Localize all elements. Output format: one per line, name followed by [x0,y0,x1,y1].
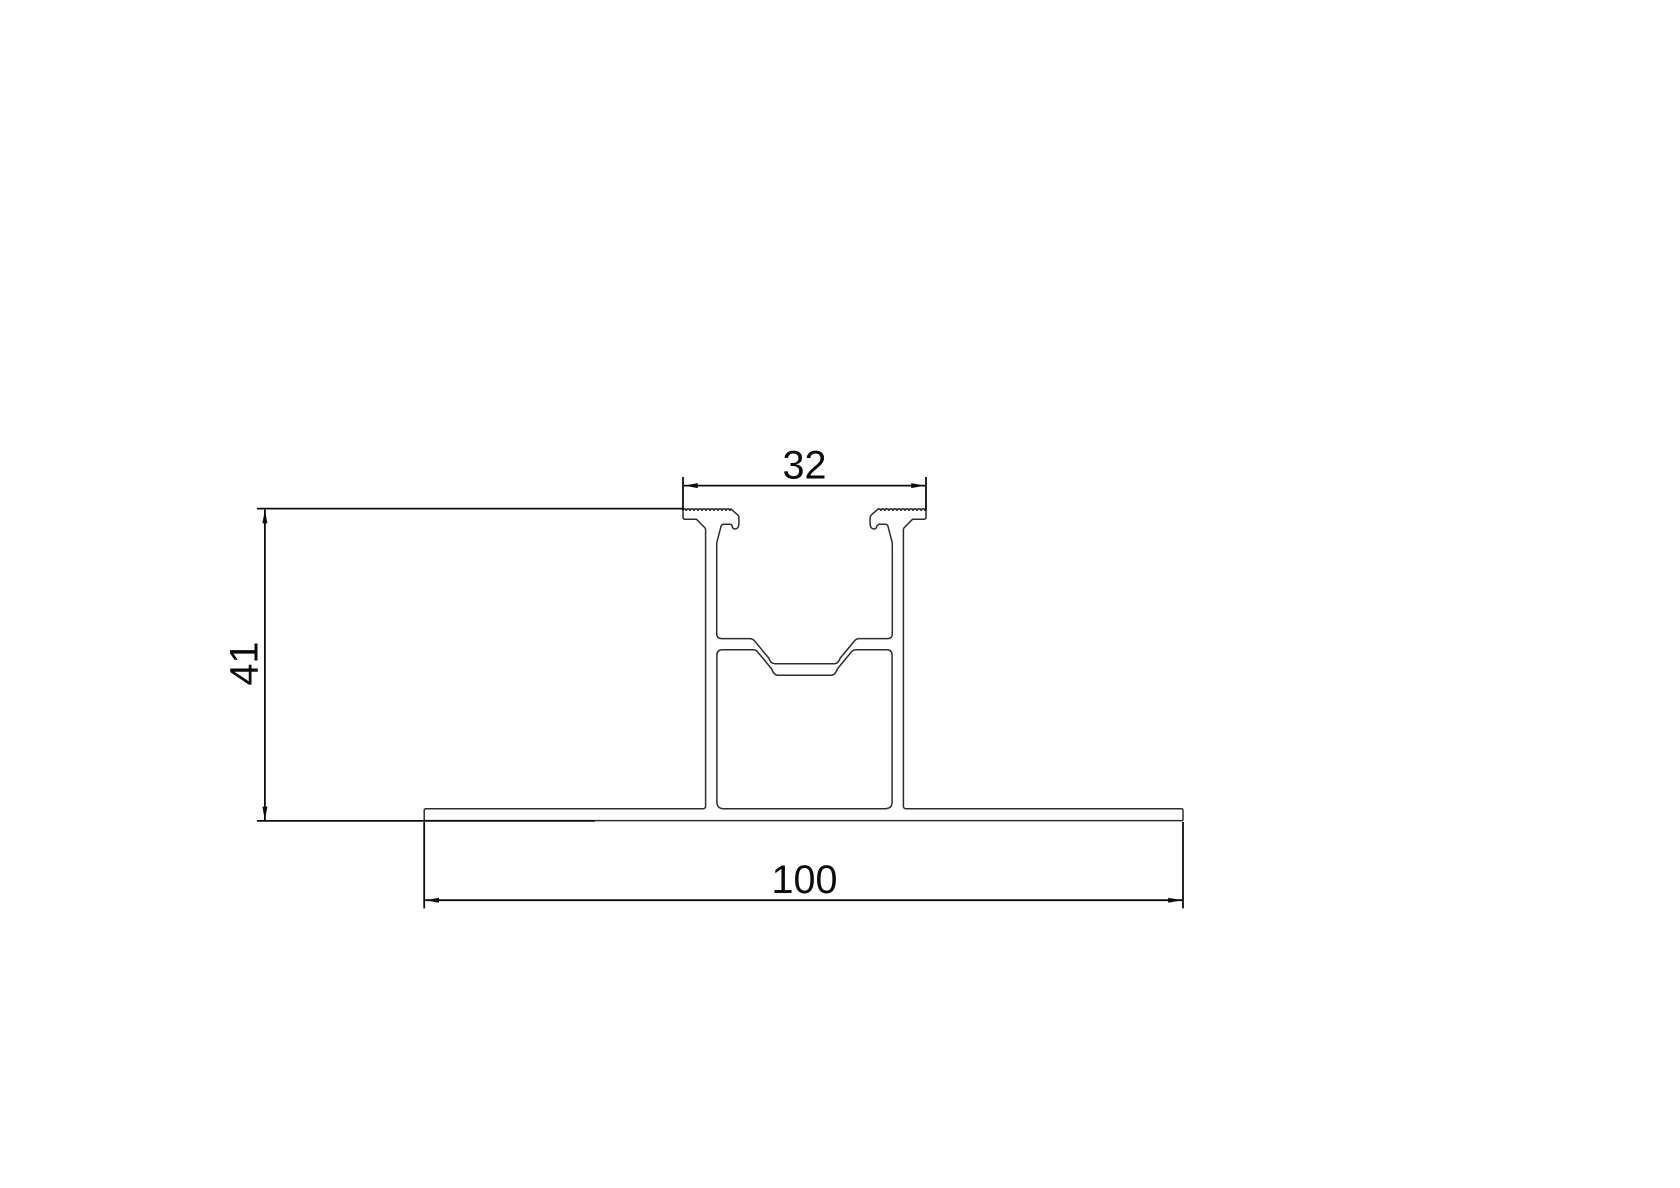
svg-text:32: 32 [783,444,827,488]
svg-text:100: 100 [772,858,838,902]
svg-text:41: 41 [222,642,266,686]
